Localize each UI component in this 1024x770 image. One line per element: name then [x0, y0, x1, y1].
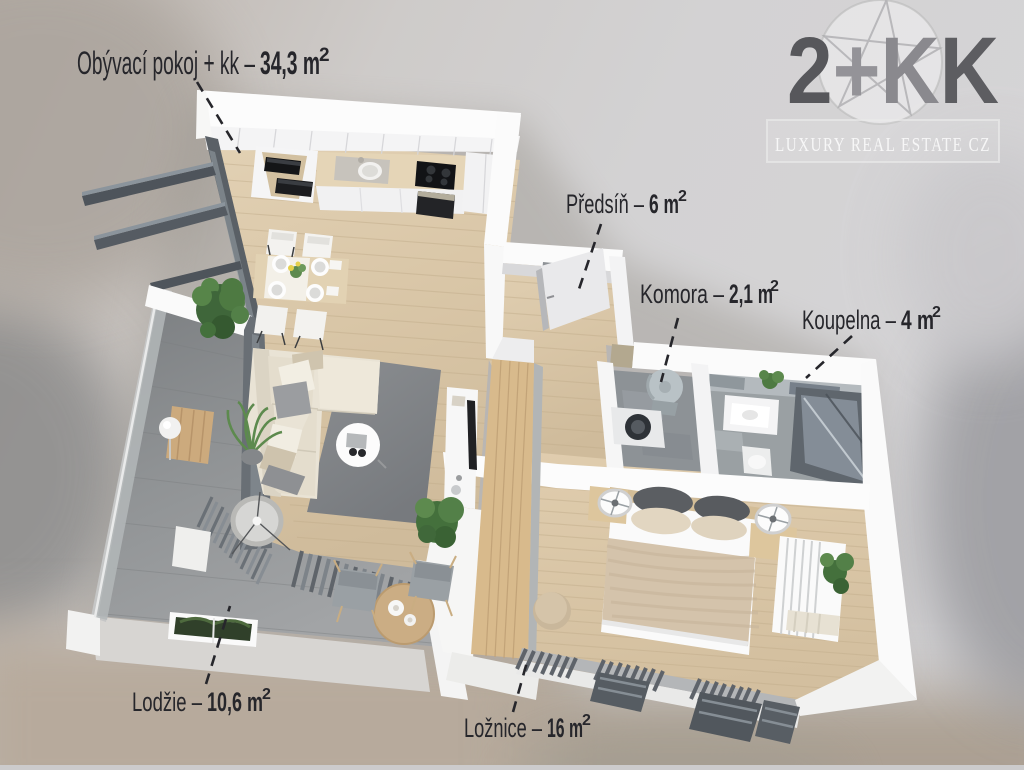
- svg-text:2: 2: [319, 45, 330, 66]
- svg-text:2: 2: [262, 686, 271, 703]
- svg-text:2: 2: [582, 712, 591, 729]
- svg-text:Předsíň –: Předsíň –: [566, 189, 644, 219]
- svg-text:Koupelna –: Koupelna –: [802, 305, 896, 335]
- svg-text:4 m: 4 m: [901, 305, 934, 335]
- svg-text:2,1 m: 2,1 m: [729, 279, 773, 309]
- svg-text:16 m: 16 m: [547, 713, 583, 743]
- svg-text:2: 2: [932, 304, 941, 321]
- svg-text:2+KK: 2+KK: [787, 18, 999, 124]
- svg-text:34,3 m: 34,3 m: [260, 45, 320, 81]
- svg-text:2: 2: [678, 188, 687, 205]
- svg-text:Lodžie –: Lodžie –: [132, 687, 202, 717]
- svg-text:Ložnice –: Ložnice –: [464, 713, 542, 743]
- svg-text:10,6 m: 10,6 m: [207, 687, 263, 717]
- svg-text:Komora –: Komora –: [640, 279, 724, 309]
- svg-text:6 m: 6 m: [649, 189, 679, 219]
- svg-text:Obývací pokoj + kk –: Obývací pokoj + kk –: [77, 45, 255, 81]
- svg-text:2: 2: [770, 278, 779, 295]
- svg-text:LUXURY REAL ESTATE CZ: LUXURY REAL ESTATE CZ: [775, 134, 991, 156]
